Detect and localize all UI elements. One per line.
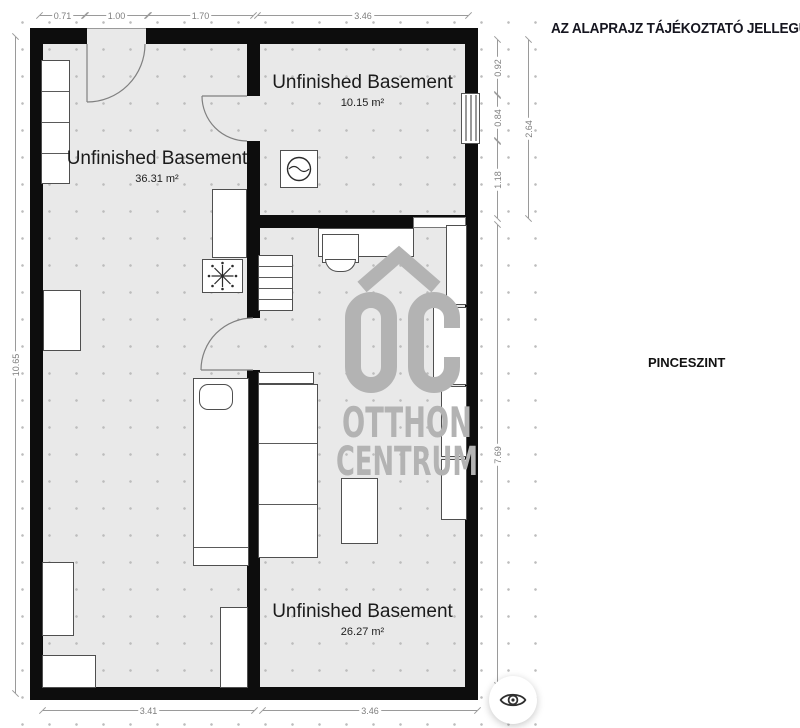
room-name: Unfinished Basement: [260, 601, 465, 622]
dim-label: 3.46: [352, 11, 374, 21]
staircase: [258, 255, 293, 311]
room-area: 10.15 m²: [260, 97, 465, 109]
dim-bottom-1: 3.41: [43, 710, 254, 711]
wardrobe: [258, 384, 318, 558]
room-area: 36.31 m²: [47, 173, 267, 185]
dim-label: 1.70: [190, 11, 212, 21]
room-top-right-floor: [260, 44, 465, 215]
room-label-bottom-right: Unfinished Basement 26.27 m²: [260, 601, 465, 638]
dim-label: 2.64: [524, 118, 534, 140]
dim-top-4: 3.46: [258, 15, 468, 16]
room-name: Unfinished Basement: [260, 72, 465, 93]
dim-label: 0.92: [493, 57, 503, 79]
dim-top-3: 1.70: [148, 15, 253, 16]
room-name: Unfinished Basement: [47, 148, 267, 169]
washing-machine-drum-icon: [281, 151, 317, 187]
door-opening-lower: [247, 318, 260, 370]
room-label-top-right: Unfinished Basement 10.15 m²: [260, 72, 465, 109]
dim-label: 10.65: [11, 352, 21, 379]
right-wall-cabinet-4: [441, 459, 467, 520]
floor-level-label: PINCESZINT: [648, 355, 725, 370]
pillow: [199, 384, 233, 410]
dim-left-total: 10.65: [15, 37, 16, 693]
preview-eye-button[interactable]: [489, 676, 537, 724]
wardrobe-top: [258, 372, 314, 384]
dim-top-1: 0.71: [40, 15, 85, 16]
cabinet-left-mid: [43, 290, 81, 351]
dim-label: 3.46: [359, 706, 381, 716]
dim-right-outer: 2.64: [528, 40, 529, 218]
eye-icon: [498, 689, 528, 711]
dim-label: 1.18: [493, 169, 503, 191]
snowflake-icon: [203, 260, 242, 292]
dim-top-2: 1.00: [85, 15, 148, 16]
dim-right-upper-1: 0.92: [497, 40, 498, 95]
room-area: 26.27 m²: [260, 626, 465, 638]
dim-right-lower: 7.69: [497, 225, 498, 685]
info-panel: AZ ALAPRAJZ TÁJÉKOZTATÓ JELLEGŰ! PINCESZ…: [545, 0, 800, 728]
dim-right-upper-3: 1.18: [497, 141, 498, 218]
dim-label: 7.69: [493, 444, 503, 466]
room-label-left: Unfinished Basement 36.31 m²: [47, 148, 267, 185]
door-opening-top: [87, 28, 146, 45]
floorplan-canvas: Unfinished Basement 36.31 m² Unfinished …: [0, 0, 545, 728]
dim-label: 1.00: [106, 11, 128, 21]
dim-label: 3.41: [138, 706, 160, 716]
right-wall-cabinet-2: [433, 307, 467, 385]
dim-bottom-2: 3.46: [263, 710, 477, 711]
washing-machine: [280, 150, 318, 188]
floor-drain-box: [202, 259, 243, 293]
right-wall-cabinet-3: [441, 386, 467, 457]
tall-cabinet: [212, 189, 247, 258]
wall-bottom: [30, 687, 478, 700]
cabinet-bottom-left: [42, 562, 74, 636]
dim-label: 0.71: [52, 11, 74, 21]
cabinet-bottom-wall: [42, 655, 96, 688]
dim-right-upper-2: 0.84: [497, 95, 498, 141]
cabinet-by-divider: [220, 607, 248, 688]
right-wall-cabinet-1: [446, 225, 467, 305]
dim-label: 0.84: [493, 107, 503, 129]
door-opening-upper: [247, 96, 260, 141]
freestanding-cabinet: [341, 478, 378, 544]
disclaimer-text: AZ ALAPRAJZ TÁJÉKOZTATÓ JELLEGŰ!: [551, 21, 800, 37]
